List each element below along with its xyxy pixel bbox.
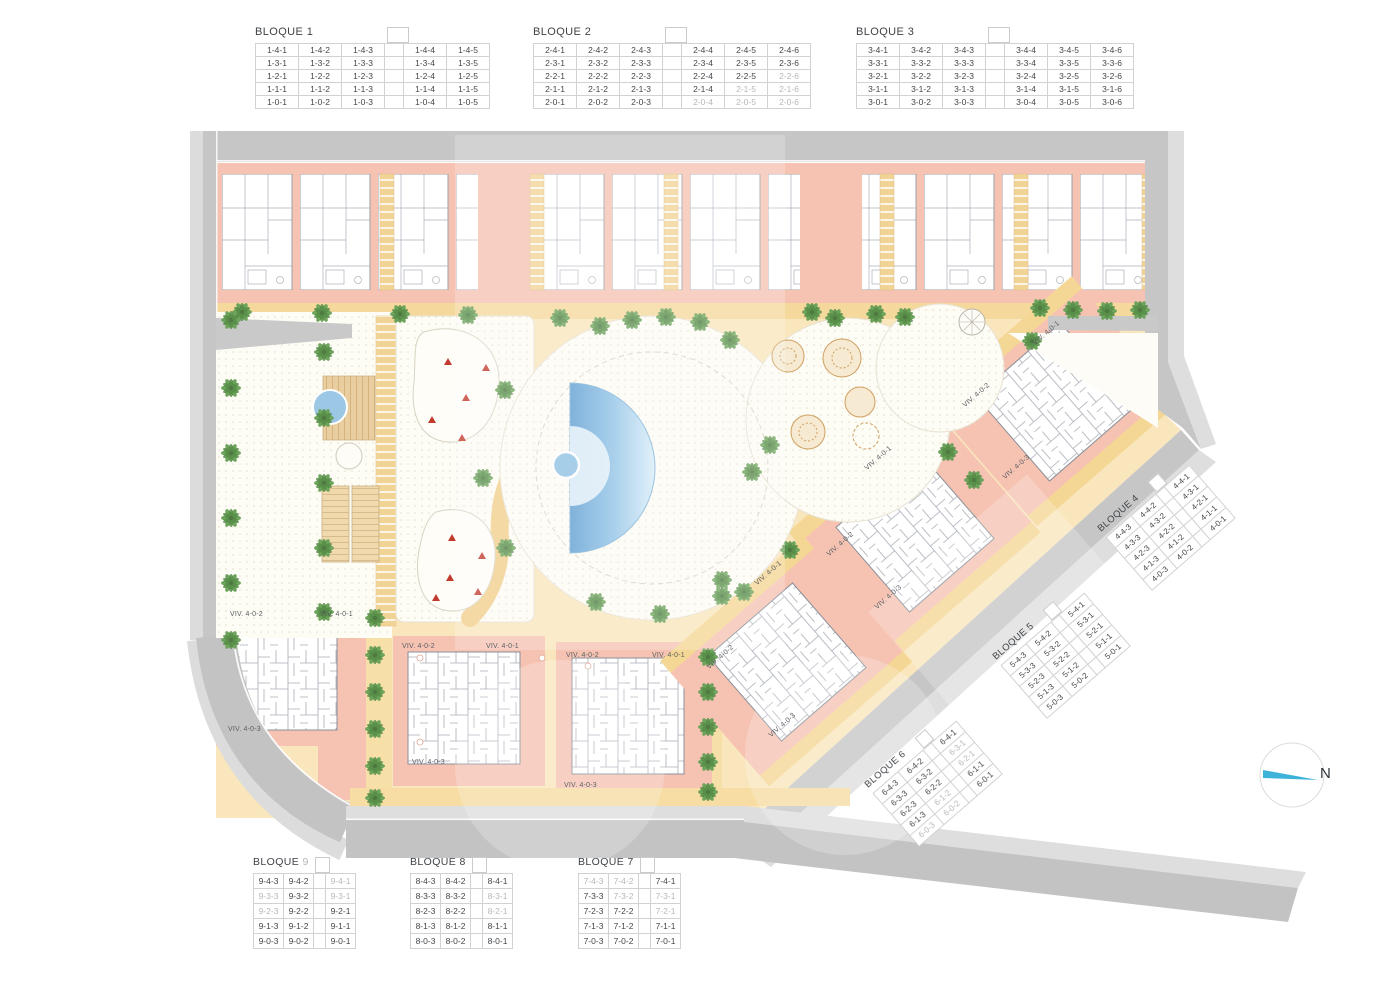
unit-cell: 7-2-1	[650, 903, 681, 919]
legend-box	[387, 27, 409, 43]
unit-cell: 3-0-2	[899, 95, 943, 109]
unit-cell: 9-4-3	[253, 873, 284, 889]
viv-label: VIV. 4-0-3	[412, 759, 445, 766]
legend-box	[640, 857, 655, 873]
unit-cell: 2-4-6	[767, 43, 811, 57]
table-row: 8-3-38-3-28-3-1	[410, 888, 512, 903]
compass-north-label: N	[1320, 765, 1331, 782]
unit-cell: 2-1-6	[767, 82, 811, 96]
table-row: 7-2-37-2-27-2-1	[578, 903, 680, 918]
viv-label: VIV. 4-0-1	[320, 611, 353, 618]
unit-cell: 9-3-1	[325, 888, 356, 904]
table-row: 9-2-39-2-29-2-1	[253, 903, 355, 918]
unit-cell: 8-1-2	[440, 918, 471, 934]
unit-cell: 7-3-3	[578, 888, 609, 904]
unit-cell: 3-4-5	[1047, 43, 1091, 57]
unit-cell: 3-0-5	[1047, 95, 1091, 109]
legend-box	[315, 857, 330, 873]
unit-cell: 3-1-2	[899, 82, 943, 96]
unit-cell: 7-2-2	[608, 903, 639, 919]
unit-cell: 3-2-4	[1004, 69, 1048, 83]
unit-cell: 9-1-2	[283, 918, 314, 934]
unit-cell: 8-3-3	[410, 888, 441, 904]
table-row: 2-4-12-4-22-4-32-4-42-4-52-4-6	[533, 43, 810, 56]
unit-cell: 1-4-5	[446, 43, 490, 57]
viv-label: VIV. 4-0-3	[564, 782, 597, 789]
unit-cell: 1-3-3	[341, 56, 385, 70]
table-row: 1-0-11-0-21-0-31-0-41-0-5	[255, 95, 489, 108]
legend-box	[665, 27, 687, 43]
unit-cell: 9-0-3	[253, 933, 284, 949]
unit-cell: 1-4-3	[341, 43, 385, 57]
unit-cell: 3-4-1	[856, 43, 900, 57]
unit-cell: 8-1-1	[482, 918, 513, 934]
table-row: 3-4-13-4-23-4-33-4-43-4-53-4-6	[856, 43, 1133, 56]
table-row: 8-4-38-4-28-4-1	[410, 873, 512, 888]
gap-cell	[985, 95, 1005, 109]
unit-cell: 3-3-1	[856, 56, 900, 70]
sundial	[959, 309, 985, 335]
unit-cell: 2-3-6	[767, 56, 811, 70]
unit-cell: 2-1-1	[533, 82, 577, 96]
gap-cell	[384, 95, 404, 109]
unit-cell: 1-4-1	[255, 43, 299, 57]
gap-cell	[985, 82, 1005, 96]
unit-cell: 3-1-3	[942, 82, 986, 96]
bloque-2-table: BLOQUE 22-4-12-4-22-4-32-4-42-4-52-4-62-…	[533, 26, 810, 108]
table-row: 1-2-11-2-21-2-31-2-41-2-5	[255, 69, 489, 82]
gap-cell	[384, 43, 404, 57]
unit-cell: 9-4-2	[283, 873, 314, 889]
table-row: 3-1-13-1-23-1-33-1-43-1-53-1-6	[856, 82, 1133, 95]
gap-cell	[985, 69, 1005, 83]
unit-cell: 2-4-5	[724, 43, 768, 57]
table-row: 7-0-37-0-27-0-1	[578, 933, 680, 948]
unit-cell: 3-2-2	[899, 69, 943, 83]
unit-cell: 2-0-4	[681, 95, 725, 109]
block-title: BLOQUE 1	[255, 26, 489, 43]
compass-icon	[1260, 743, 1324, 807]
unit-cell: 9-0-1	[325, 933, 356, 949]
unit-cell: 2-2-3	[619, 69, 663, 83]
bloque-1-table: BLOQUE 11-4-11-4-21-4-31-4-41-4-51-3-11-…	[255, 26, 489, 108]
unit-cell: 7-1-3	[578, 918, 609, 934]
bloque-3-table: BLOQUE 33-4-13-4-23-4-33-4-43-4-53-4-63-…	[856, 26, 1133, 108]
gap-cell	[662, 69, 682, 83]
table-row: 7-4-37-4-27-4-1	[578, 873, 680, 888]
unit-cell: 3-4-6	[1090, 43, 1134, 57]
unit-cell: 2-2-4	[681, 69, 725, 83]
unit-cell: 7-3-2	[608, 888, 639, 904]
pergola	[352, 486, 379, 562]
viv-label: VIV. 4-0-3	[228, 726, 261, 733]
unit-cell: 1-2-3	[341, 69, 385, 83]
legend-box	[988, 27, 1010, 43]
gap-cell	[662, 95, 682, 109]
table-row: 2-3-12-3-22-3-32-3-42-3-52-3-6	[533, 56, 810, 69]
unit-cell: 3-3-2	[899, 56, 943, 70]
gap-cell	[384, 69, 404, 83]
unit-cell: 8-0-2	[440, 933, 471, 949]
unit-cell: 3-0-6	[1090, 95, 1134, 109]
unit-cell: 7-3-1	[650, 888, 681, 904]
unit-cell: 2-1-5	[724, 82, 768, 96]
table-row: 8-2-38-2-28-2-1	[410, 903, 512, 918]
unit-cell: 2-3-2	[576, 56, 620, 70]
table-row: 3-3-13-3-23-3-33-3-43-3-53-3-6	[856, 56, 1133, 69]
unit-cell: 1-2-1	[255, 69, 299, 83]
unit-cell: 3-2-1	[856, 69, 900, 83]
unit-cell: 9-3-2	[283, 888, 314, 904]
unit-cell: 7-4-2	[608, 873, 639, 889]
unit-cell: 1-0-1	[255, 95, 299, 109]
unit-cell: 2-0-5	[724, 95, 768, 109]
unit-cell: 1-3-1	[255, 56, 299, 70]
unit-cell: 8-4-1	[482, 873, 513, 889]
unit-cell: 2-3-5	[724, 56, 768, 70]
table-row: 7-1-37-1-27-1-1	[578, 918, 680, 933]
unit-cell: 3-0-4	[1004, 95, 1048, 109]
unit-cell: 1-0-5	[446, 95, 490, 109]
viv-label: VIV. 4-0-2	[402, 643, 435, 650]
unit-cell: 3-0-1	[856, 95, 900, 109]
block-title: BLOQUE 9	[253, 856, 355, 873]
unit-cell: 9-0-2	[283, 933, 314, 949]
table-row: 7-3-37-3-27-3-1	[578, 888, 680, 903]
unit-cell: 1-4-2	[298, 43, 342, 57]
unit-cell: 2-1-2	[576, 82, 620, 96]
unit-cell: 7-0-1	[650, 933, 681, 949]
unit-cell: 1-1-2	[298, 82, 342, 96]
unit-cell: 7-0-3	[578, 933, 609, 949]
unit-cell: 7-0-2	[608, 933, 639, 949]
unit-cell: 1-4-4	[403, 43, 447, 57]
unit-cell: 2-3-1	[533, 56, 577, 70]
unit-cell: 9-4-1	[325, 873, 356, 889]
unit-cell: 8-1-3	[410, 918, 441, 934]
unit-cell: 2-4-2	[576, 43, 620, 57]
table-row: 2-1-12-1-22-1-32-1-42-1-52-1-6	[533, 82, 810, 95]
table-row: 1-1-11-1-21-1-31-1-41-1-5	[255, 82, 489, 95]
unit-cell: 9-2-2	[283, 903, 314, 919]
block-title: BLOQUE 8	[410, 856, 512, 873]
gap-cell	[384, 82, 404, 96]
unit-cell: 1-2-2	[298, 69, 342, 83]
viv-label: VIV. 4-0-1	[652, 652, 685, 659]
unit-cell: 3-4-4	[1004, 43, 1048, 57]
bloque-7-table: BLOQUE 77-4-37-4-27-4-17-3-37-3-27-3-17-…	[578, 856, 680, 948]
unit-cell: 3-1-5	[1047, 82, 1091, 96]
unit-cell: 9-1-1	[325, 918, 356, 934]
unit-cell: 2-4-3	[619, 43, 663, 57]
bloque-9-table: BLOQUE 99-4-39-4-29-4-19-3-39-3-29-3-19-…	[253, 856, 355, 948]
unit-cell: 3-1-6	[1090, 82, 1134, 96]
unit-cell: 2-4-1	[533, 43, 577, 57]
table-row: 9-0-39-0-29-0-1	[253, 933, 355, 948]
table-row: 8-1-38-1-28-1-1	[410, 918, 512, 933]
unit-cell: 3-4-3	[942, 43, 986, 57]
viv-label: VIV. 4-0-2	[566, 652, 599, 659]
unit-cell: 7-1-1	[650, 918, 681, 934]
unit-cell: 3-4-2	[899, 43, 943, 57]
block-title: BLOQUE 2	[533, 26, 810, 43]
unit-cell: 2-3-4	[681, 56, 725, 70]
table-row: 9-1-39-1-29-1-1	[253, 918, 355, 933]
unit-cell: 8-4-3	[410, 873, 441, 889]
table-row: 1-3-11-3-21-3-31-3-41-3-5	[255, 56, 489, 69]
unit-cell: 8-0-1	[482, 933, 513, 949]
site-plan-page: BLOQUE 11-4-11-4-21-4-31-4-41-4-51-3-11-…	[0, 0, 1400, 989]
block-title: BLOQUE 7	[578, 856, 680, 873]
unit-cell: 3-1-4	[1004, 82, 1048, 96]
unit-cell: 7-2-3	[578, 903, 609, 919]
unit-cell: 3-0-3	[942, 95, 986, 109]
unit-cell: 1-0-3	[341, 95, 385, 109]
unit-cell: 1-3-2	[298, 56, 342, 70]
unit-cell: 2-2-2	[576, 69, 620, 83]
unit-cell: 9-2-3	[253, 903, 284, 919]
unit-cell: 7-4-3	[578, 873, 609, 889]
table-row: 9-4-39-4-29-4-1	[253, 873, 355, 888]
unit-cell: 2-1-4	[681, 82, 725, 96]
unit-cell: 1-3-5	[446, 56, 490, 70]
unit-cell: 1-2-4	[403, 69, 447, 83]
unit-cell: 1-1-3	[341, 82, 385, 96]
unit-cell: 9-1-3	[253, 918, 284, 934]
unit-cell: 3-3-5	[1047, 56, 1091, 70]
unit-cell: 8-2-1	[482, 903, 513, 919]
unit-cell: 7-4-1	[650, 873, 681, 889]
unit-cell: 2-2-1	[533, 69, 577, 83]
unit-cell: 2-0-2	[576, 95, 620, 109]
unit-cell: 2-0-6	[767, 95, 811, 109]
unit-cell: 1-3-4	[403, 56, 447, 70]
legend-box	[472, 857, 487, 873]
unit-cell: 2-0-1	[533, 95, 577, 109]
gap-cell	[985, 43, 1005, 57]
viv-label: VIV. 4-0-2	[230, 611, 263, 618]
unit-cell: 3-3-6	[1090, 56, 1134, 70]
gap-cell	[662, 43, 682, 57]
unit-cell: 9-2-1	[325, 903, 356, 919]
gap-cell	[985, 56, 1005, 70]
unit-cell: 2-2-6	[767, 69, 811, 83]
unit-cell: 3-2-5	[1047, 69, 1091, 83]
gap-cell	[662, 56, 682, 70]
unit-cell: 1-1-5	[446, 82, 490, 96]
unit-cell: 1-1-1	[255, 82, 299, 96]
block-title: BLOQUE 3	[856, 26, 1133, 43]
unit-cell: 2-2-5	[724, 69, 768, 83]
table-row: 2-2-12-2-22-2-32-2-42-2-52-2-6	[533, 69, 810, 82]
unit-cell: 1-1-4	[403, 82, 447, 96]
unit-cell: 8-3-1	[482, 888, 513, 904]
unit-cell: 3-3-3	[942, 56, 986, 70]
unit-cell: 3-2-3	[942, 69, 986, 83]
unit-cell: 2-4-4	[681, 43, 725, 57]
gap-cell	[384, 56, 404, 70]
table-row: 8-0-38-0-28-0-1	[410, 933, 512, 948]
unit-cell: 8-3-2	[440, 888, 471, 904]
table-row: 1-4-11-4-21-4-31-4-41-4-5	[255, 43, 489, 56]
unit-cell: 2-0-3	[619, 95, 663, 109]
table-row: 3-0-13-0-23-0-33-0-43-0-53-0-6	[856, 95, 1133, 108]
table-row: 2-0-12-0-22-0-32-0-42-0-52-0-6	[533, 95, 810, 108]
unit-cell: 2-1-3	[619, 82, 663, 96]
unit-cell: 8-2-3	[410, 903, 441, 919]
unit-cell: 8-4-2	[440, 873, 471, 889]
viv-label: VIV. 4-0-1	[486, 643, 519, 650]
unit-cell: 1-0-4	[403, 95, 447, 109]
left-plaza	[216, 312, 396, 638]
unit-cell: 3-3-4	[1004, 56, 1048, 70]
unit-cell: 7-1-2	[608, 918, 639, 934]
gap-cell	[662, 82, 682, 96]
unit-cell: 8-2-2	[440, 903, 471, 919]
unit-cell: 9-3-3	[253, 888, 284, 904]
table-row: 3-2-13-2-23-2-33-2-43-2-53-2-6	[856, 69, 1133, 82]
bloque-8-table: BLOQUE 88-4-38-4-28-4-18-3-38-3-28-3-18-…	[410, 856, 512, 948]
unit-cell: 1-0-2	[298, 95, 342, 109]
unit-cell: 3-2-6	[1090, 69, 1134, 83]
unit-cell: 2-3-3	[619, 56, 663, 70]
unit-cell: 8-0-3	[410, 933, 441, 949]
unit-cell: 3-1-1	[856, 82, 900, 96]
table-row: 9-3-39-3-29-3-1	[253, 888, 355, 903]
unit-cell: 1-2-5	[446, 69, 490, 83]
